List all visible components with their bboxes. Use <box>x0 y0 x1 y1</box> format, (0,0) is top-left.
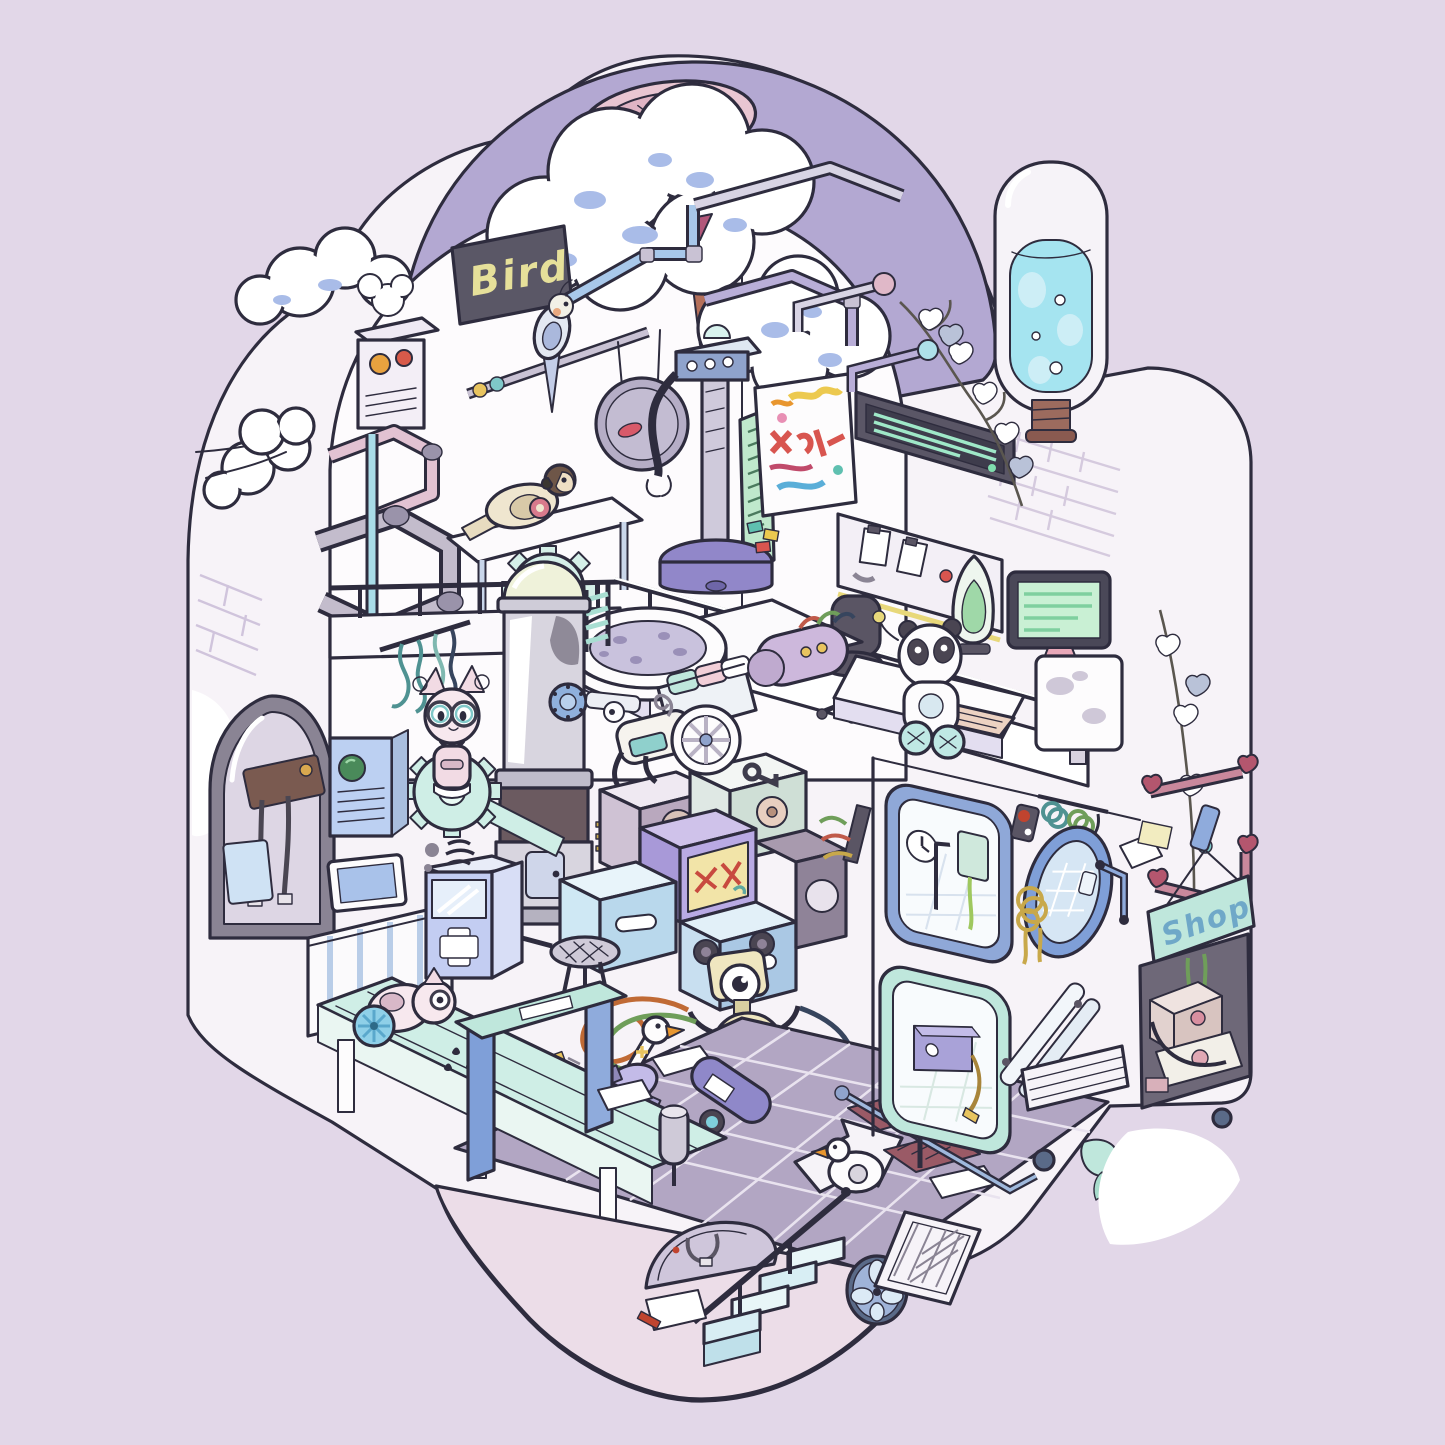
ac-panel <box>330 730 408 836</box>
arched-window <box>210 696 334 938</box>
shower-niche-heater <box>880 962 1010 1158</box>
white-monitor <box>1036 656 1122 764</box>
capsule-screw-base <box>1026 400 1076 442</box>
window-pane <box>223 840 273 904</box>
medical-cabinet <box>426 856 522 978</box>
illustration-canvas: Bird <box>0 0 1445 1445</box>
shop-shelf-boxes <box>1140 934 1250 1108</box>
shower-niche-clock <box>886 780 1012 967</box>
tv-screen <box>328 854 407 911</box>
isometric-house-illustration: Bird <box>0 0 1445 1445</box>
